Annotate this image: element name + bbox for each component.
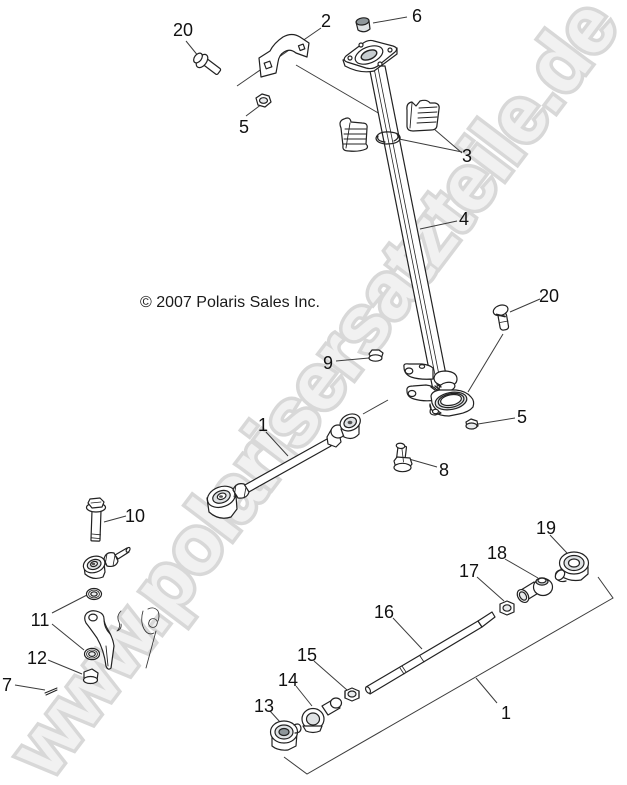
svg-text:14: 14 xyxy=(278,670,298,690)
svg-text:5: 5 xyxy=(239,117,249,137)
svg-text:16: 16 xyxy=(374,602,394,622)
svg-text:9: 9 xyxy=(323,353,333,373)
svg-text:6: 6 xyxy=(412,6,422,26)
svg-text:1: 1 xyxy=(258,415,268,435)
svg-text:3: 3 xyxy=(462,146,472,166)
svg-text:1: 1 xyxy=(501,703,511,723)
svg-text:4: 4 xyxy=(459,209,469,229)
svg-text:20: 20 xyxy=(539,286,559,306)
svg-text:13: 13 xyxy=(254,696,274,716)
svg-text:2: 2 xyxy=(321,11,331,31)
svg-text:17: 17 xyxy=(459,561,479,581)
svg-text:© 2007 Polaris Sales Inc.: © 2007 Polaris Sales Inc. xyxy=(140,294,320,311)
svg-text:18: 18 xyxy=(487,543,507,563)
svg-text:10: 10 xyxy=(125,506,145,526)
svg-text:5: 5 xyxy=(517,407,527,427)
svg-text:11: 11 xyxy=(31,610,50,630)
svg-text:20: 20 xyxy=(173,20,193,40)
svg-text:12: 12 xyxy=(27,648,47,668)
svg-text:7: 7 xyxy=(2,675,12,695)
svg-text:15: 15 xyxy=(297,645,317,665)
svg-text:19: 19 xyxy=(536,518,556,538)
svg-text:8: 8 xyxy=(439,460,449,480)
